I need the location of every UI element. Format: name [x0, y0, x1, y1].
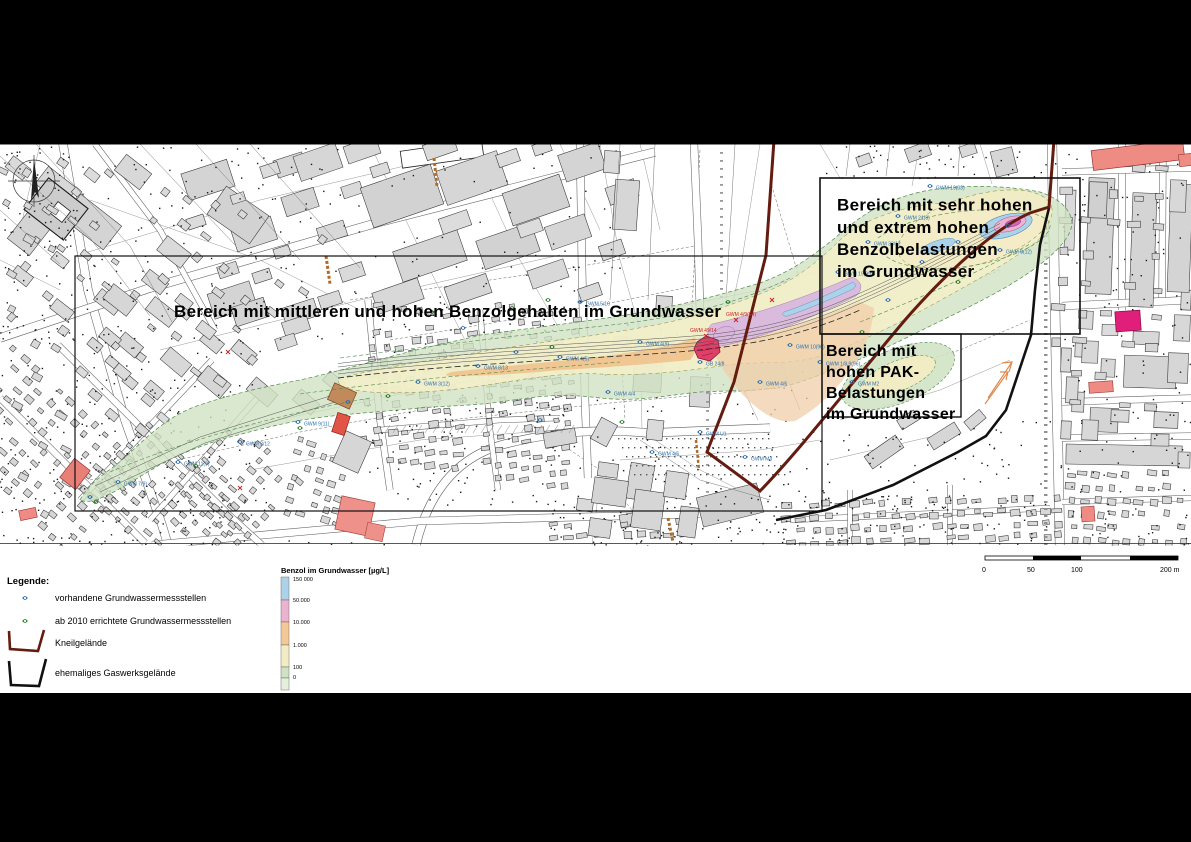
svg-text:0: 0 [293, 675, 296, 681]
svg-text:Benzol im Grundwasser [µg/L]: Benzol im Grundwasser [µg/L] [281, 566, 390, 575]
svg-text:100: 100 [1071, 567, 1083, 574]
svg-text:Benzolbelastungen: Benzolbelastungen [837, 240, 998, 259]
svg-text:100: 100 [293, 665, 302, 671]
svg-text:GWM 8/13: GWM 8/13 [484, 366, 508, 372]
svg-text:GWM 3(12): GWM 3(12) [424, 382, 450, 388]
svg-text:GWM 4/9(94): GWM 4/9(94) [726, 312, 756, 318]
svg-text:GWM U1: GWM U1 [706, 432, 727, 438]
svg-text:GWM 9(11): GWM 9(11) [304, 422, 330, 428]
svg-text:50: 50 [1027, 567, 1035, 574]
svg-text:GWM 8(12): GWM 8(12) [1006, 250, 1032, 256]
svg-text:GB 24/8: GB 24/8 [706, 362, 725, 368]
svg-text:50.000: 50.000 [293, 598, 310, 604]
svg-text:Belastungen: Belastungen [826, 385, 925, 402]
svg-text:und extrem hohen: und extrem hohen [837, 218, 989, 237]
svg-text:GWM 4/6: GWM 4/6 [658, 452, 679, 458]
svg-text:GWM 2/12: GWM 2/12 [246, 442, 270, 448]
svg-text:GWM 4/6: GWM 4/6 [766, 382, 787, 388]
svg-text:ehemaliges Gaswerksgelände: ehemaliges Gaswerksgelände [55, 668, 176, 678]
svg-text:Bereich mit mittleren und hohe: Bereich mit mittleren und hohen Benzolge… [174, 302, 721, 321]
svg-text:10.000: 10.000 [293, 620, 310, 626]
svg-text:hohen PAK-: hohen PAK- [826, 364, 919, 381]
svg-text:im Grundwasser: im Grundwasser [837, 262, 974, 281]
svg-text:GWM 7(9): GWM 7(9) [124, 482, 147, 488]
svg-text:200 m: 200 m [1160, 567, 1180, 574]
svg-text:1.000: 1.000 [293, 643, 307, 649]
svg-text:0: 0 [982, 567, 986, 574]
svg-text:im Grundwasser: im Grundwasser [826, 406, 956, 423]
svg-text:Bereich mit sehr hohen: Bereich mit sehr hohen [837, 196, 1033, 215]
svg-text:GWM 4(5): GWM 4(5) [566, 357, 589, 363]
svg-text:GWM M3: GWM M3 [751, 457, 772, 463]
svg-text:150 000: 150 000 [293, 577, 313, 583]
svg-text:GWM 10(96): GWM 10(96) [796, 345, 825, 351]
svg-text:vorhandene Grundwassermessstel: vorhandene Grundwassermessstellen [55, 593, 206, 603]
svg-text:GWM 4/4: GWM 4/4 [614, 392, 635, 398]
svg-text:Legende:: Legende: [7, 576, 49, 587]
svg-text:GWM 4(9): GWM 4(9) [646, 342, 669, 348]
svg-text:Bereich mit: Bereich mit [826, 343, 917, 360]
svg-text:GWM 19(03): GWM 19(03) [936, 186, 965, 192]
svg-text:ab 2010 errichtete Grundwasser: ab 2010 errichtete Grundwassermessstelle… [55, 616, 231, 626]
svg-text:Kneilgelände: Kneilgelände [55, 638, 107, 648]
svg-text:GWM 49/14: GWM 49/14 [690, 328, 717, 334]
